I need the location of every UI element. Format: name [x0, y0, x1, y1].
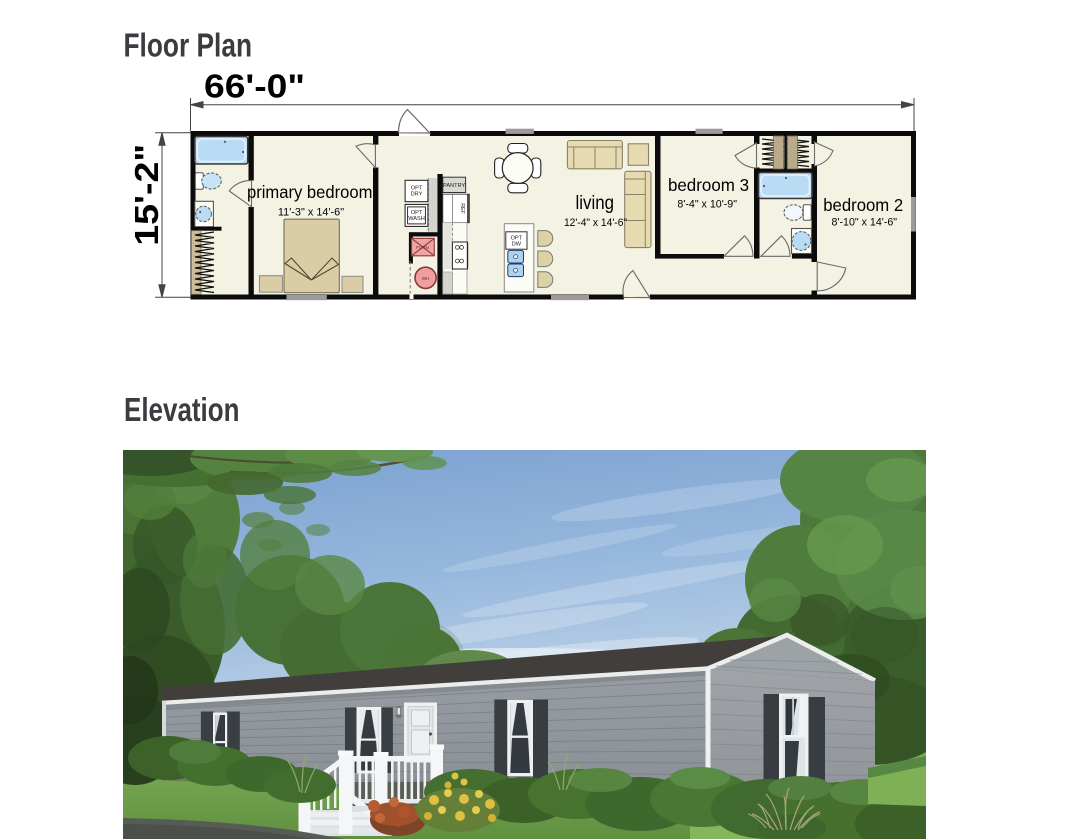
- svg-text:Floor Plan: Floor Plan: [124, 26, 253, 63]
- svg-text:8'-10" x 14'-6": 8'-10" x 14'-6": [832, 216, 898, 228]
- svg-text:bedroom 3: bedroom 3: [668, 175, 749, 195]
- svg-text:DRY: DRY: [411, 192, 423, 198]
- svg-text:11'-3" x 14'-6": 11'-3" x 14'-6": [278, 206, 344, 218]
- svg-text:12'-4" x 14'-6": 12'-4" x 14'-6": [564, 217, 627, 229]
- svg-text:primary bedroom: primary bedroom: [247, 182, 372, 202]
- svg-text:Elevation: Elevation: [124, 391, 240, 428]
- svg-text:PANTRY: PANTRY: [443, 183, 465, 189]
- svg-text:66'-0": 66'-0": [204, 68, 305, 105]
- svg-text:bedroom 2: bedroom 2: [823, 195, 903, 215]
- svg-text:living: living: [576, 193, 615, 214]
- svg-text:15'-2": 15'-2": [128, 144, 165, 246]
- svg-text:WH: WH: [422, 276, 430, 281]
- svg-text:8'-4" x 10'-9": 8'-4" x 10'-9": [677, 198, 737, 210]
- svg-text:WASH: WASH: [408, 216, 425, 222]
- svg-text:DW: DW: [512, 241, 522, 247]
- svg-text:REF: REF: [459, 203, 465, 213]
- svg-text:FURN: FURN: [416, 245, 429, 250]
